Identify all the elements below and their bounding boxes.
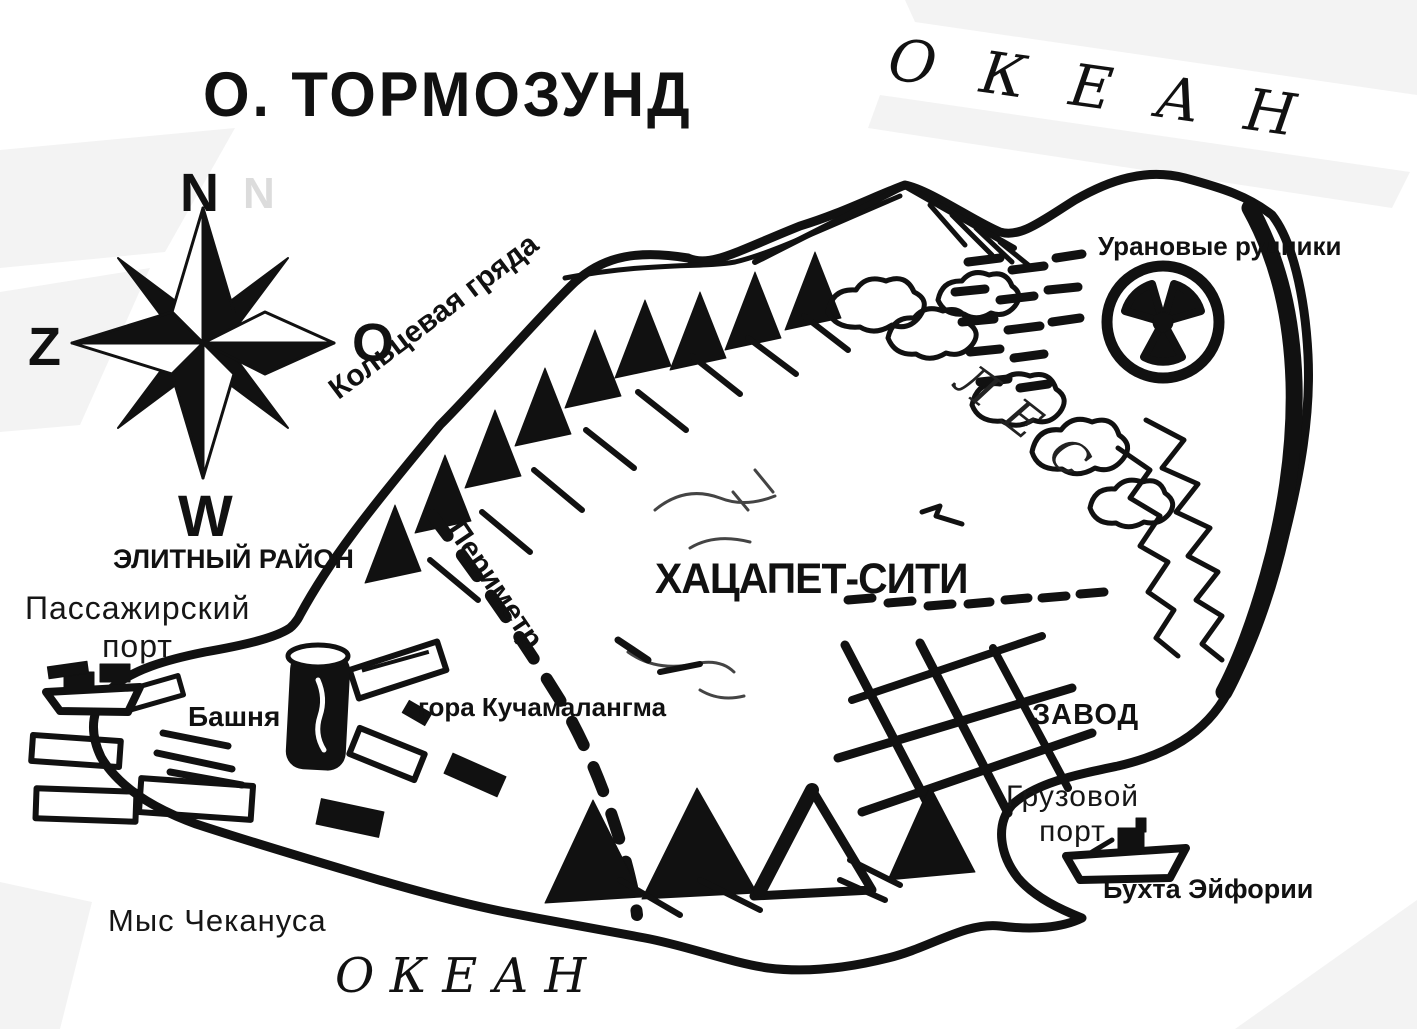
mountain-label: гора Кучамалангма bbox=[418, 694, 666, 720]
passenger-port-label: Пассажирский порт bbox=[25, 592, 250, 662]
uranium-mines-label: Урановые рудники bbox=[1098, 233, 1342, 259]
compass-letter-n-ghost: N bbox=[243, 172, 275, 216]
cape-label: Мыс Чекануса bbox=[108, 905, 327, 936]
passenger-port-line2: порт bbox=[102, 630, 173, 662]
cargo-port-line1: Грузовой bbox=[1006, 780, 1139, 813]
factory-label: ЗАВОД bbox=[1032, 701, 1139, 730]
tower-drawing bbox=[285, 645, 351, 771]
elite-district-label: ЭЛИТНЫЙ РАЙОН bbox=[113, 546, 354, 573]
tower-label: Башня bbox=[188, 703, 280, 731]
cargo-port-line2: порт bbox=[1039, 817, 1106, 847]
compass-letter-z: Z bbox=[28, 320, 61, 374]
compass-letter-n: N bbox=[180, 166, 219, 220]
island-map: О. ТОРМОЗУНД ОКЕАН ОКЕАН N N Z O W Кольц… bbox=[0, 0, 1417, 1029]
passenger-port-line1: Пассажирский bbox=[25, 590, 250, 626]
cargo-port-label: Грузовой порт bbox=[1005, 782, 1140, 847]
passenger-ships bbox=[46, 661, 140, 712]
euphoria-bay-label: Бухта Эйфории bbox=[1103, 876, 1313, 903]
map-title: О. ТОРМОЗУНД bbox=[203, 64, 692, 127]
compass-letter-w: W bbox=[178, 488, 233, 546]
city-label: ХАЦАПЕТ-СИТИ bbox=[655, 558, 967, 601]
ocean-label-bottom: ОКЕАН bbox=[335, 952, 602, 1000]
